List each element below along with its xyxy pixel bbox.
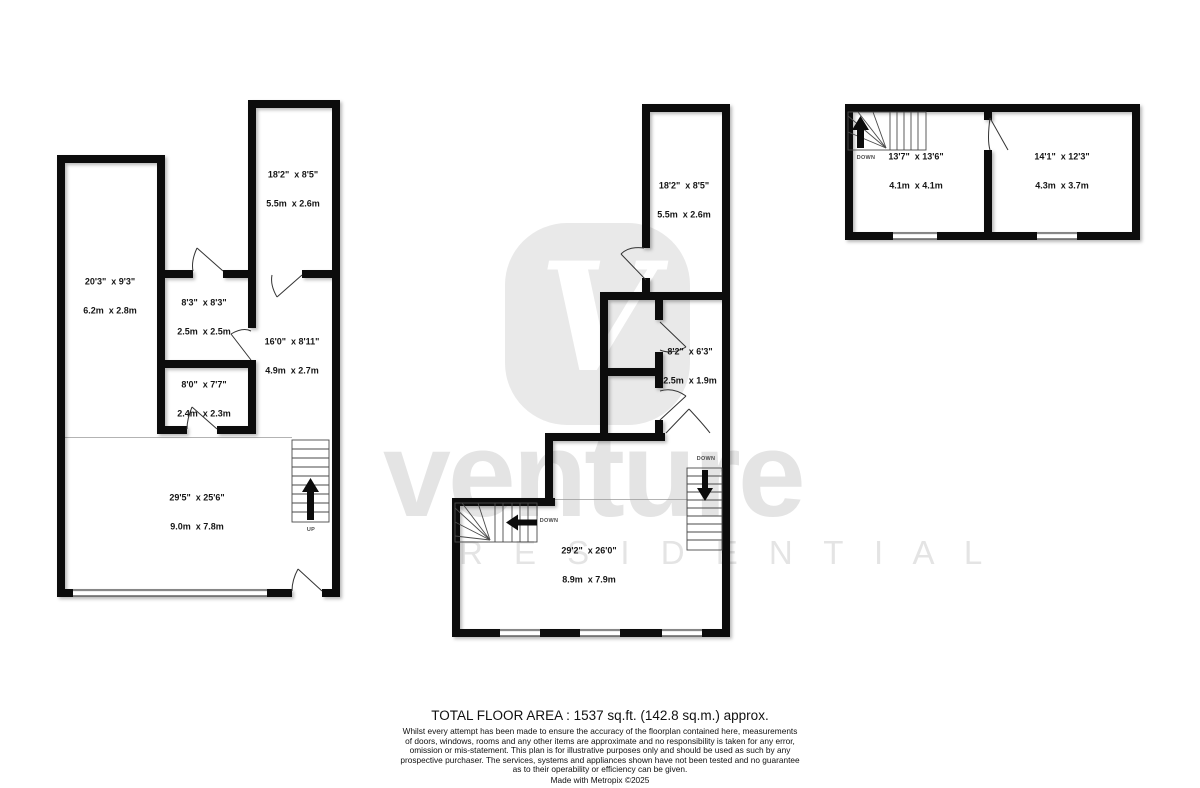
room-label: 18'2" x 8'5" 5.5m x 2.6m <box>266 152 320 229</box>
up-arrow-icon <box>302 478 319 520</box>
room-label: 20'3" x 9'3" 6.2m x 2.8m <box>83 259 137 336</box>
stairs-down-label: DOWN <box>697 456 716 462</box>
total-floor-area: TOTAL FLOOR AREA : 1537 sq.ft. (142.8 sq… <box>0 708 1200 723</box>
room-label: 18'2" x 8'5" 5.5m x 2.6m <box>657 163 711 240</box>
stairs-winder-middle-plan <box>455 503 537 542</box>
room-label: 14'1" x 12'3" 4.3m x 3.7m <box>1034 134 1089 211</box>
room-label: 8'3" x 8'3" 2.5m x 2.5m <box>177 280 231 357</box>
disclaimer: Whilst every attempt has been made to en… <box>0 727 1200 775</box>
stairs-up-left-plan <box>292 440 329 522</box>
stairs-down-label: DOWN <box>857 155 876 161</box>
stairs-down-label: DOWN <box>540 518 559 524</box>
level-lines <box>65 438 687 500</box>
room-label: 29'2" x 26'0" 8.9m x 7.9m <box>561 528 616 605</box>
left-arrow-icon <box>506 515 537 531</box>
room-label: 16'0" x 8'11" 4.9m x 2.7m <box>265 319 320 396</box>
room-label: 29'5" x 25'6" 9.0m x 7.8m <box>169 475 224 552</box>
down-arrow-icon <box>697 470 713 501</box>
room-label: 8'2" x 6'3" 2.5m x 1.9m <box>663 329 717 406</box>
floorplan-canvas: V venture R E S I D E N T I A L <box>0 0 1200 788</box>
stairs-up-label: UP <box>307 527 315 533</box>
room-label: 8'0" x 7'7" 2.4m x 2.3m <box>177 362 231 439</box>
metropix-credit: Made with Metropix ©2025 <box>0 775 1200 785</box>
stairs-down-middle-plan <box>687 468 722 550</box>
room-label: 13'7" x 13'6" 4.1m x 4.1m <box>888 134 943 211</box>
